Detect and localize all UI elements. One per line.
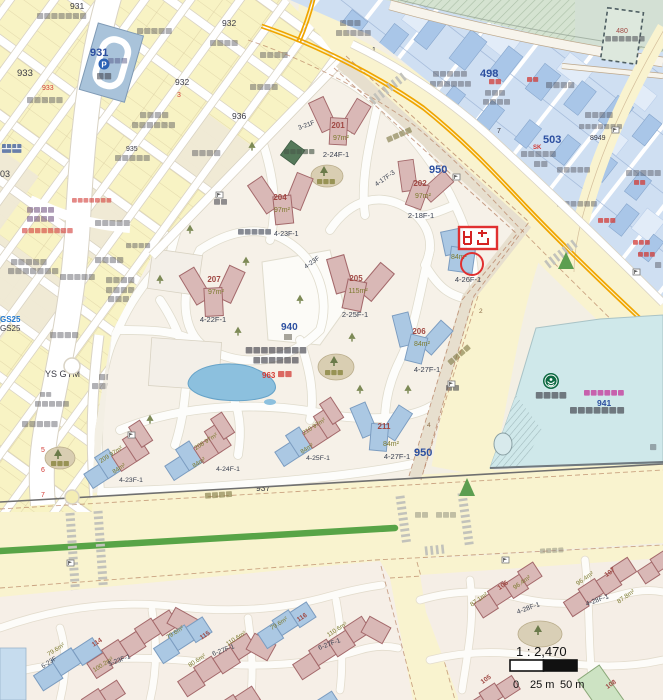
- svg-text:936: 936: [232, 111, 246, 121]
- svg-text:4-23F-1: 4-23F-1: [119, 477, 143, 484]
- svg-text:2-25F-1: 2-25F-1: [342, 310, 368, 319]
- svg-text:204: 204: [273, 193, 287, 202]
- svg-text:202: 202: [413, 179, 427, 188]
- svg-text:2: 2: [479, 308, 483, 315]
- svg-text:GS25: GS25: [0, 315, 21, 324]
- svg-text:4-24F-1: 4-24F-1: [216, 466, 240, 473]
- svg-text:25 m: 25 m: [530, 679, 554, 691]
- svg-text:211: 211: [378, 422, 391, 431]
- svg-text:503: 503: [543, 134, 561, 146]
- svg-text:03: 03: [0, 169, 10, 179]
- svg-text:931: 931: [90, 47, 108, 59]
- svg-text:50 m: 50 m: [560, 679, 584, 691]
- svg-text:7: 7: [497, 128, 501, 135]
- svg-text:97m²: 97m²: [333, 135, 350, 142]
- svg-text:207: 207: [207, 275, 221, 284]
- svg-text:205: 205: [349, 274, 363, 283]
- svg-text:480: 480: [616, 28, 628, 35]
- svg-text:2-18F-1: 2-18F-1: [408, 211, 434, 220]
- svg-text:4: 4: [427, 422, 431, 429]
- svg-text:GS25: GS25: [0, 324, 21, 333]
- svg-text:940: 940: [281, 322, 298, 333]
- svg-text:931: 931: [70, 1, 84, 11]
- svg-text:3: 3: [177, 92, 181, 99]
- svg-text:P: P: [101, 61, 107, 70]
- svg-text:963: 963: [262, 371, 276, 380]
- svg-text:SK: SK: [533, 145, 542, 151]
- svg-text:4-25F-1: 4-25F-1: [306, 455, 330, 462]
- svg-text:950: 950: [429, 164, 447, 176]
- svg-text:97m²: 97m²: [274, 207, 291, 214]
- svg-text:4-22F-1: 4-22F-1: [200, 315, 226, 324]
- svg-text:206: 206: [412, 327, 426, 336]
- svg-text:4-27F-1: 4-27F-1: [414, 365, 440, 374]
- svg-text:84m²: 84m²: [383, 441, 400, 448]
- svg-text:1 : 2,470: 1 : 2,470: [516, 644, 567, 659]
- svg-text:115m²: 115m²: [348, 288, 368, 295]
- svg-text:932: 932: [222, 18, 236, 28]
- svg-text:97m²: 97m²: [208, 289, 225, 296]
- svg-text:7: 7: [41, 492, 45, 499]
- svg-text:5: 5: [41, 447, 45, 454]
- svg-text:84m²: 84m²: [414, 341, 431, 348]
- svg-text:4-23F-1: 4-23F-1: [274, 231, 299, 238]
- svg-text:932: 932: [175, 77, 189, 87]
- svg-text:97m²: 97m²: [415, 193, 432, 200]
- svg-text:201: 201: [331, 121, 345, 130]
- svg-text:941: 941: [597, 398, 611, 408]
- svg-text:4-26F-1: 4-26F-1: [455, 275, 481, 284]
- svg-text:2-24F-1: 2-24F-1: [323, 150, 349, 159]
- svg-text:933: 933: [42, 85, 54, 92]
- svg-text:935: 935: [126, 146, 138, 153]
- svg-text:8949: 8949: [590, 135, 606, 142]
- svg-text:0: 0: [513, 679, 519, 691]
- svg-text:4-27F-1: 4-27F-1: [384, 452, 410, 461]
- svg-text:933: 933: [17, 68, 33, 79]
- svg-text:498: 498: [480, 68, 498, 80]
- svg-text:6: 6: [41, 467, 45, 474]
